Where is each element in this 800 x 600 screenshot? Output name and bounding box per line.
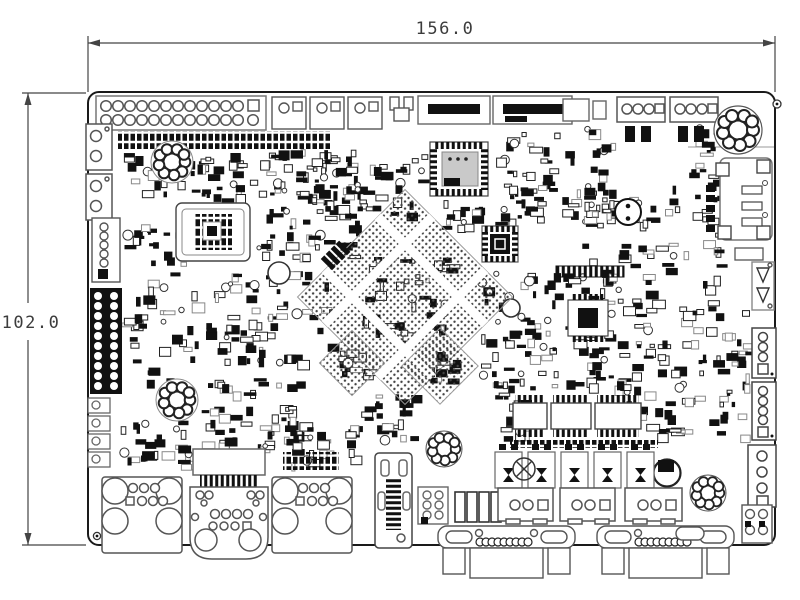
dimension-width-label: 156.0 <box>416 19 475 39</box>
gpio-pin-strip <box>118 131 332 149</box>
vertical-connector <box>375 453 412 548</box>
audio-jack-2 <box>86 174 112 220</box>
pin-strip-bottom <box>283 452 339 470</box>
audio-jack-1 <box>86 124 112 170</box>
qfn-chip-2 <box>482 226 518 262</box>
right-edge-connector <box>752 262 774 310</box>
wafer-connector-right-2 <box>752 382 776 440</box>
pin-strip-mid <box>556 266 624 277</box>
dimension-height-label: 102.0 <box>2 313 61 333</box>
wafer-connector-left <box>92 218 120 282</box>
pcb-drawing-canvas: 156.0 102.0 <box>0 0 800 600</box>
qfp-chip <box>176 203 250 261</box>
toroid-inductor-3 <box>714 106 762 154</box>
toroid-inductor-5 <box>690 475 726 511</box>
soic-chip-1 <box>513 395 547 437</box>
toroid-inductor-4 <box>426 431 462 467</box>
pin-header-2x13 <box>96 96 266 130</box>
buzzer <box>615 199 641 225</box>
top-edge-connectors <box>272 96 606 129</box>
qfn-chip-1 <box>430 142 488 196</box>
soic-chip-3 <box>595 395 641 437</box>
wafer-connector-right-3 <box>748 445 776 507</box>
pcb-drawing: 156.0 102.0 <box>0 0 800 600</box>
bottom-connector-a <box>102 477 182 553</box>
pad-row-bottom <box>510 440 658 448</box>
bottom-connector-c <box>272 477 352 553</box>
wafer-connector-bottom-3 <box>625 488 682 524</box>
dsub-connector-2 <box>597 526 734 578</box>
soic-chip-2 <box>551 395 591 437</box>
wafer-connector-bottom-1 <box>498 488 553 524</box>
crystal-circle-2 <box>268 262 290 284</box>
toroid-inductor-1 <box>151 141 193 183</box>
toroid-inductor-2 <box>156 379 198 421</box>
bottom-connector-b <box>190 449 268 559</box>
wafer-6pin <box>418 487 448 524</box>
dimension-width <box>88 36 775 92</box>
wafer-connector-right-1 <box>752 328 776 378</box>
pin-header-2col <box>90 288 122 394</box>
dsub-connector-1 <box>438 526 575 578</box>
qfn-chip-3 <box>568 294 608 342</box>
wafer-connector-bottom-2 <box>560 488 615 524</box>
